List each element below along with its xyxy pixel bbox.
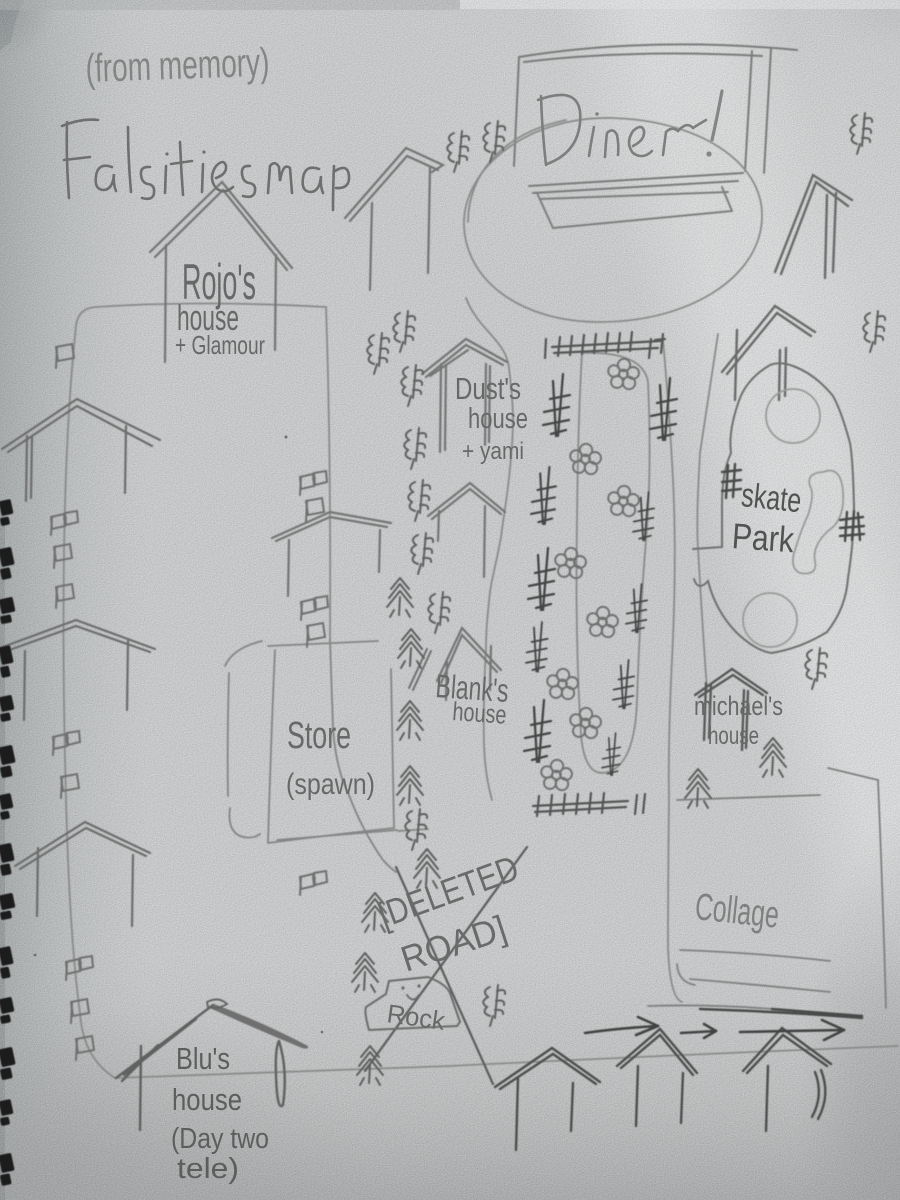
svg-text:+ yami: + yami <box>462 438 524 465</box>
svg-text:Store: Store <box>287 715 351 757</box>
svg-text:house: house <box>172 1082 242 1117</box>
svg-text:+ Glamour: + Glamour <box>175 330 265 360</box>
svg-text:Park: Park <box>731 515 797 560</box>
svg-text:(from memory): (from memory) <box>85 41 270 91</box>
svg-text:(spawn): (spawn) <box>286 768 375 801</box>
svg-text:(Day two: (Day two <box>171 1123 269 1155</box>
svg-text:Collage: Collage <box>693 886 781 937</box>
svg-text:skate: skate <box>740 476 804 520</box>
svg-text:Blu's: Blu's <box>176 1041 230 1076</box>
svg-text:house: house <box>452 696 508 730</box>
svg-text:Dust's: Dust's <box>455 371 521 406</box>
svg-text:house: house <box>708 722 759 750</box>
svg-text:michael's: michael's <box>694 691 783 721</box>
svg-text:tele): tele) <box>177 1153 239 1185</box>
svg-text:house: house <box>468 403 528 435</box>
